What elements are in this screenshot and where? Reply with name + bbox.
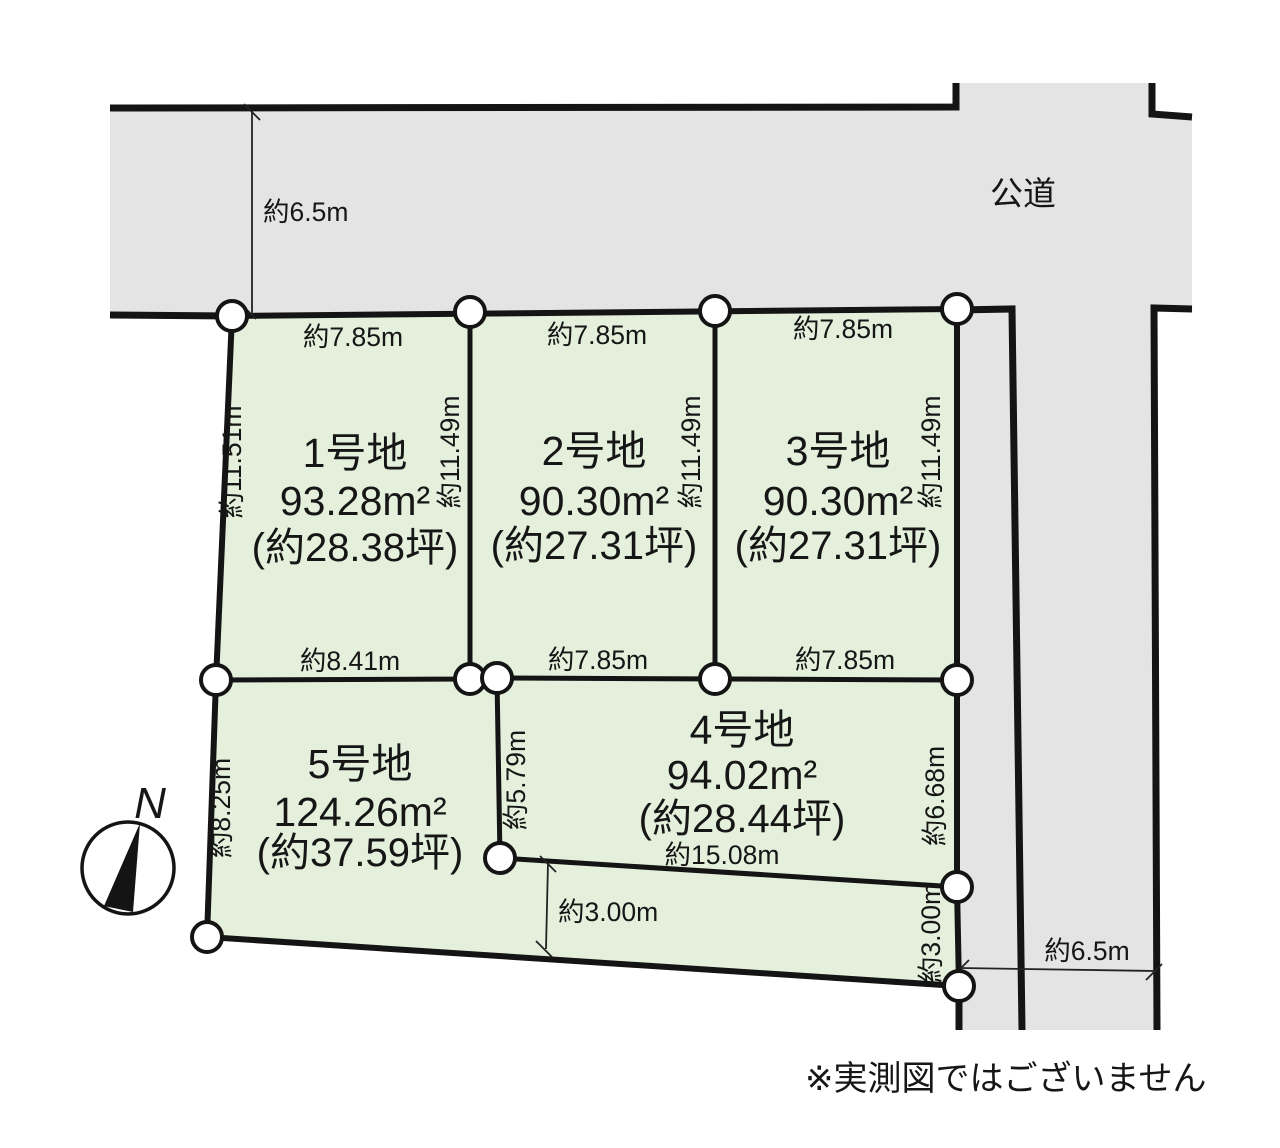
vertex-marker	[192, 922, 222, 952]
plot-3-area: 90.30m²	[763, 478, 913, 524]
plot-5-tsubo: (約37.59坪)	[257, 831, 464, 875]
dim-plot4-left: 約5.79m	[501, 730, 531, 830]
dim-boundary-2-3: 約11.49m	[676, 396, 706, 509]
land-plot-diagram: 公道 約6.5m 約6.5m 約7.85m 約7.85m 約7.85m 約11.…	[0, 0, 1280, 1148]
dim-road-right-width: 約6.5m	[1044, 936, 1129, 966]
compass: N	[82, 779, 174, 914]
plot-1-tsubo: (約28.38坪)	[252, 526, 459, 570]
dim-plot5-left: 約8.25m	[206, 758, 236, 858]
vertex-marker	[700, 296, 730, 326]
vertex-marker	[942, 294, 972, 324]
vertex-marker	[482, 663, 512, 693]
compass-n-label: N	[134, 779, 166, 828]
vertex-marker	[944, 971, 974, 1001]
dim-plot2-top: 約7.85m	[547, 320, 647, 350]
dim-plot4-right: 約6.68m	[920, 746, 950, 846]
plot-4-area: 94.02m²	[667, 752, 817, 798]
vertex-marker	[455, 297, 485, 327]
dim-strip-right: 約3.00m	[916, 883, 946, 983]
dim-plot2-bottom: 約7.85m	[548, 645, 648, 675]
plot-1-area: 93.28m²	[280, 478, 430, 524]
plot-2-area: 90.30m²	[519, 478, 669, 524]
vertex-marker	[942, 665, 972, 695]
road-border-top	[110, 83, 956, 108]
diagram-canvas: 公道 約6.5m 約6.5m 約7.85m 約7.85m 約7.85m 約11.…	[0, 0, 1280, 1148]
dim-boundary-1-2: 約11.49m	[435, 396, 465, 509]
boundary-horizontal-mid	[216, 678, 957, 680]
road-border-topright-notch	[1152, 83, 1192, 117]
dim-plot1-bottom: 約8.41m	[300, 646, 400, 676]
plot-1-label: 1号地	[303, 430, 408, 476]
dim-plot3-right: 約11.49m	[916, 396, 946, 509]
road-label: 公道	[990, 175, 1056, 212]
plot-4-tsubo: (約28.44坪)	[639, 797, 846, 841]
vertex-marker	[217, 301, 247, 331]
plot-3-tsubo: (約27.31坪)	[735, 524, 942, 568]
plot-5-area: 124.26m²	[273, 789, 446, 835]
boundary-plot5-plot4	[497, 678, 500, 858]
road-border-bottomleft	[110, 315, 232, 316]
dim-road-top-width: 約6.5m	[263, 197, 348, 227]
compass-needle-icon	[104, 823, 140, 912]
dim-plot3-bottom: 約7.85m	[795, 645, 895, 675]
plot-5-label: 5号地	[308, 741, 413, 787]
dim-plot4-bottom: 約15.08m	[665, 840, 780, 870]
dim-plot1-top: 約7.85m	[303, 322, 403, 352]
dim-plot3-top: 約7.85m	[793, 314, 893, 344]
vertex-marker	[485, 843, 515, 873]
plot-2-tsubo: (約27.31坪)	[491, 524, 698, 568]
plot-4-label: 4号地	[690, 707, 795, 753]
plot-3-label: 3号地	[786, 428, 891, 474]
road-border-right	[1154, 308, 1192, 1030]
disclaimer-note: ※実測図ではございません	[805, 1060, 1206, 1098]
plot-2-label: 2号地	[542, 428, 647, 474]
dim-plot1-left: 約11.51m	[217, 406, 247, 519]
dim-strip-width: 約3.00m	[558, 897, 658, 927]
vertex-marker	[700, 664, 730, 694]
vertex-marker	[942, 872, 972, 902]
vertex-marker	[201, 665, 231, 695]
